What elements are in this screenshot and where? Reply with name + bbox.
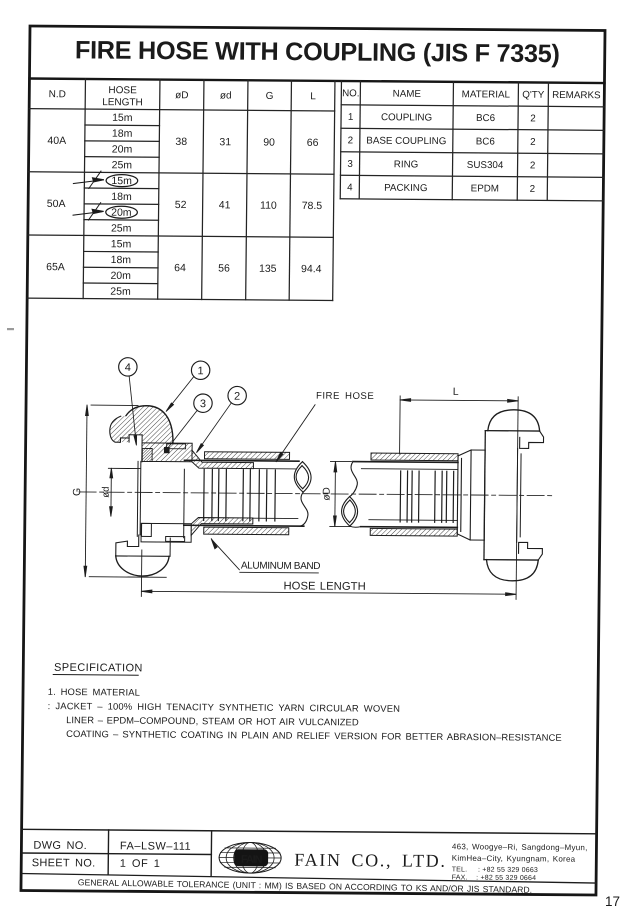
svg-text:LENGTH: LENGTH — [102, 97, 143, 108]
svg-text:BASE COUPLING: BASE COUPLING — [366, 136, 446, 148]
svg-text:25m: 25m — [112, 159, 133, 171]
svg-text:15m: 15m — [111, 238, 132, 250]
svg-text:ød: ød — [220, 90, 232, 101]
svg-text:64: 64 — [174, 262, 186, 274]
svg-text:NO.: NO. — [342, 88, 360, 99]
svg-text:SHEET NO.: SHEET NO. — [32, 857, 96, 870]
svg-text:MATERIAL: MATERIAL — [462, 89, 511, 100]
svg-text:4: 4 — [125, 362, 131, 374]
svg-text:NAME: NAME — [393, 89, 422, 100]
svg-text:FAIN: FAIN — [241, 854, 263, 866]
svg-text:: JACKET – 100% HIGH TENACITY: : JACKET – 100% HIGH TENACITY SYNTHETIC … — [48, 700, 401, 714]
svg-text:RING: RING — [394, 159, 419, 170]
svg-text:COATING – SYNTHETIC COATING IN: COATING – SYNTHETIC COATING IN PLAIN AND… — [66, 728, 562, 743]
svg-text:DWG NO.: DWG NO. — [33, 840, 87, 852]
svg-text:4: 4 — [347, 182, 353, 193]
svg-text:25m: 25m — [111, 222, 132, 234]
svg-text:41: 41 — [219, 199, 231, 211]
svg-text:FAIN CO., LTD.: FAIN CO., LTD. — [294, 850, 447, 871]
svg-text:COUPLING: COUPLING — [381, 112, 432, 123]
svg-text:SUS304: SUS304 — [467, 160, 504, 171]
svg-text:HOSE: HOSE — [108, 85, 137, 96]
svg-text:20m: 20m — [112, 143, 133, 155]
svg-text:50A: 50A — [47, 198, 66, 210]
svg-text:G: G — [266, 91, 274, 102]
svg-text:17: 17 — [605, 894, 620, 909]
svg-text:FIRE HOSE WITH COUPLING (JIS F: FIRE HOSE WITH COUPLING (JIS F 7335) — [75, 36, 560, 68]
svg-text:1. HOSE MATERIAL: 1. HOSE MATERIAL — [48, 686, 140, 698]
svg-text:TEL. : +82 55 329 0663: TEL. : +82 55 329 0663 — [452, 866, 538, 874]
svg-text:66: 66 — [307, 137, 319, 149]
svg-text:EPDM: EPDM — [471, 183, 499, 194]
svg-text:94.4: 94.4 — [301, 263, 322, 275]
svg-text:3: 3 — [347, 159, 353, 170]
svg-text:BC6: BC6 — [476, 136, 496, 147]
svg-text:2: 2 — [530, 113, 536, 124]
svg-text:ød: ød — [101, 487, 112, 498]
svg-text:1: 1 — [197, 365, 203, 377]
svg-text:N.D: N.D — [49, 89, 66, 100]
svg-text:2: 2 — [530, 137, 536, 148]
svg-text:LINER – EPDM–COMPOUND, STEAM O: LINER – EPDM–COMPOUND, STEAM OR HOT AIR … — [66, 714, 359, 727]
svg-text:BC6: BC6 — [476, 113, 496, 124]
svg-text:110: 110 — [260, 200, 277, 212]
svg-text:3: 3 — [200, 398, 206, 410]
svg-text:65A: 65A — [46, 261, 65, 273]
svg-text:52: 52 — [175, 199, 187, 211]
svg-text:2: 2 — [348, 135, 354, 146]
svg-text:SPECIFICATION: SPECIFICATION — [54, 662, 143, 675]
svg-text:2: 2 — [234, 391, 240, 403]
svg-text:38: 38 — [175, 136, 187, 148]
svg-text:1 OF 1: 1 OF 1 — [120, 858, 161, 870]
svg-text:15m: 15m — [112, 112, 133, 124]
svg-text:135: 135 — [259, 263, 277, 275]
svg-text:18m: 18m — [111, 191, 132, 203]
svg-text:L: L — [453, 386, 459, 398]
svg-text:øD: øD — [322, 487, 333, 500]
svg-text:31: 31 — [219, 136, 231, 148]
svg-text:18m: 18m — [112, 128, 133, 140]
svg-text:56: 56 — [218, 262, 230, 274]
svg-text:L: L — [310, 91, 316, 102]
svg-text:øD: øD — [175, 90, 188, 101]
svg-text:463, Woogye–Ri, Sangdong–Myun,: 463, Woogye–Ri, Sangdong–Myun, — [452, 842, 588, 852]
svg-text:18m: 18m — [111, 254, 132, 266]
svg-text:PACKING: PACKING — [384, 183, 427, 194]
svg-text:20m: 20m — [110, 270, 131, 282]
svg-text:40A: 40A — [47, 135, 66, 147]
svg-text:78.5: 78.5 — [302, 200, 323, 212]
svg-text:Q'TY: Q'TY — [522, 90, 545, 101]
svg-text:2: 2 — [530, 184, 536, 195]
svg-text:ALUMINUM BAND: ALUMINUM BAND — [241, 561, 321, 573]
svg-text:REMARKS: REMARKS — [552, 90, 601, 101]
svg-text:G: G — [71, 488, 83, 496]
svg-text:1: 1 — [348, 112, 354, 123]
svg-text:25m: 25m — [110, 286, 131, 298]
svg-text:FIRE HOSE: FIRE HOSE — [316, 391, 374, 402]
svg-text:HOSE LENGTH: HOSE LENGTH — [283, 580, 365, 593]
svg-text:KimHea–City, Kyungnam, Korea: KimHea–City, Kyungnam, Korea — [452, 854, 576, 864]
svg-text:FA–LSW–111: FA–LSW–111 — [120, 840, 191, 853]
svg-text:2: 2 — [530, 160, 536, 171]
svg-text:90: 90 — [263, 137, 275, 149]
